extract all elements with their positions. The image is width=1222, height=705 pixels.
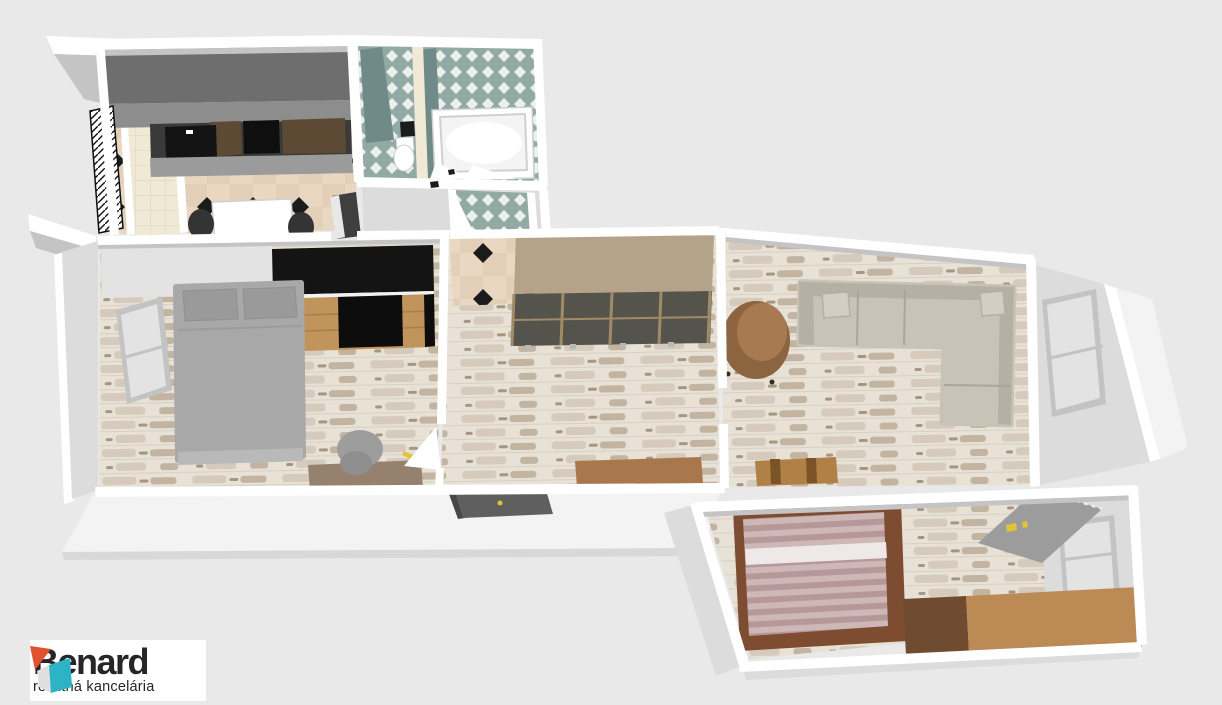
sofa-pillow-right <box>980 291 1005 316</box>
toilet-bowl <box>394 145 414 171</box>
bathroom <box>358 41 540 182</box>
bedroom-1 <box>99 239 444 492</box>
sofa-seam <box>904 290 905 345</box>
wardrobe-foot <box>668 342 674 347</box>
logo: Benard realitná kancelária <box>30 640 206 701</box>
kitchen <box>90 43 361 244</box>
sink-faucet <box>186 130 193 134</box>
wardrobe-foot <box>620 343 626 348</box>
door-handle-mark <box>430 181 439 188</box>
shelf-yellow-dot <box>498 501 503 506</box>
hallway <box>441 232 720 487</box>
pillow-left <box>183 289 238 321</box>
sofa-armrest-left <box>799 282 814 345</box>
desk-chair-seat <box>340 451 372 475</box>
wardrobe-foot <box>570 344 576 349</box>
kitchen-counter-edge <box>150 154 353 177</box>
bedroom-2 <box>706 489 1142 659</box>
bedroom2-dresser-dark <box>903 596 969 655</box>
floor-plan-page: Benard realitná kancelária <box>0 0 1222 705</box>
benard-cube-icon <box>30 640 72 694</box>
basin-tap <box>448 169 455 175</box>
details <box>430 181 439 188</box>
hallway-rug <box>575 457 703 487</box>
logo-gray-facet <box>37 665 51 693</box>
bathtub-basin <box>446 122 522 164</box>
pillow-right <box>243 287 297 319</box>
sideboard-notch <box>806 458 817 483</box>
sofa-seam <box>857 290 858 345</box>
living-sideboard <box>755 457 838 486</box>
toilet-cistern <box>400 121 415 137</box>
bed2-striped-bedding <box>743 512 888 636</box>
armchair-seat <box>737 303 787 361</box>
wardrobe-open-gap <box>338 295 403 348</box>
logo-teal-facet <box>49 658 72 693</box>
armchair-foot <box>770 380 775 385</box>
bedroom2-dresser-light <box>966 587 1142 652</box>
cooktop <box>243 120 280 154</box>
kitchen-backsplash-wood-right <box>282 118 346 154</box>
sofa-seam <box>944 385 1010 386</box>
hall-wardrobe-top <box>514 232 714 294</box>
wardrobe-side-gap <box>424 294 435 347</box>
bedroom1-north-cap-right <box>357 230 449 240</box>
desk-yellow-item <box>1022 521 1028 528</box>
wardrobe-foot <box>525 345 531 350</box>
floor-plan-rendering <box>0 0 1222 705</box>
hallway-east-cap-lower <box>719 424 729 488</box>
sideboard-notch <box>770 459 781 484</box>
sofa-pillow-left <box>822 292 850 318</box>
